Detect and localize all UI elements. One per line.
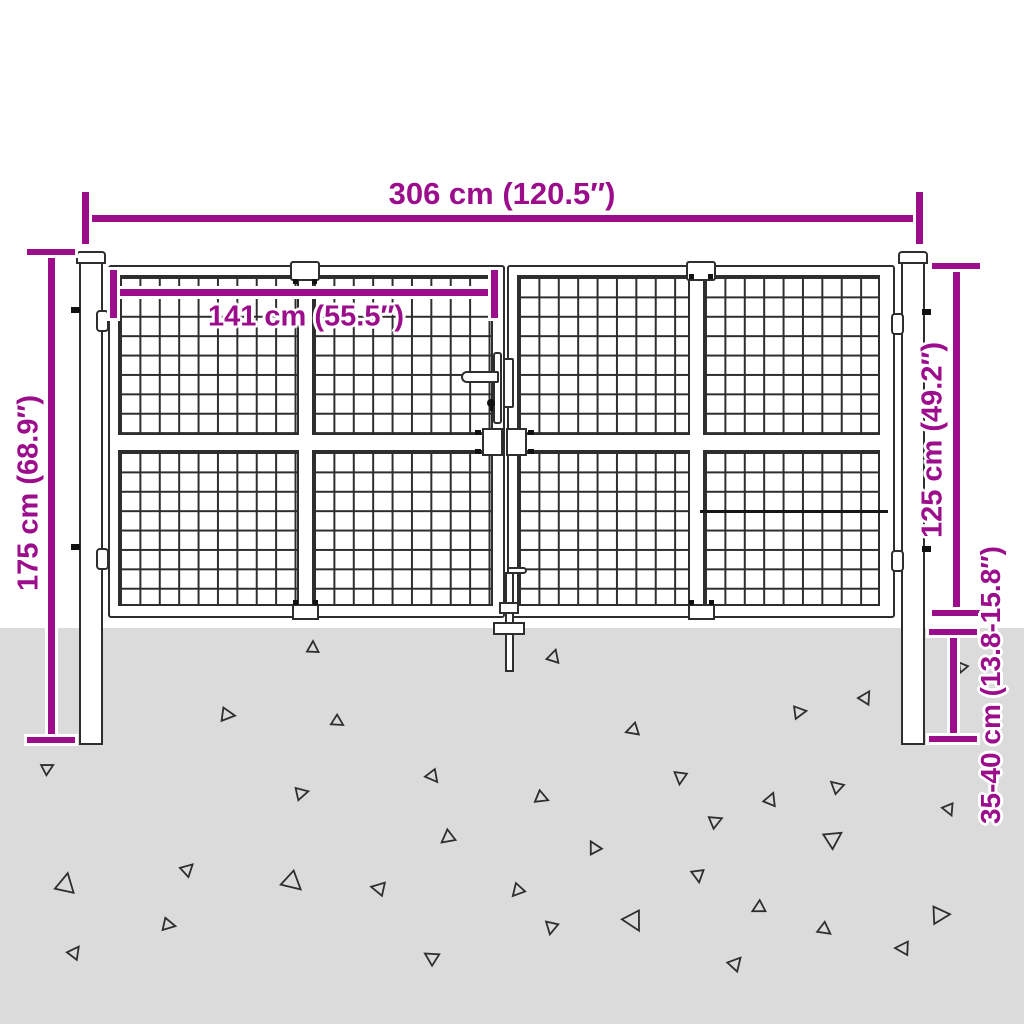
bolt-dot <box>313 600 318 605</box>
gravel-triangle <box>585 838 602 855</box>
gate-handle <box>461 371 499 383</box>
gravel-triangle <box>370 880 385 895</box>
bolt-dot <box>475 430 481 435</box>
gravel-triangle <box>827 777 844 794</box>
gravel-triangle <box>956 663 968 675</box>
mesh-panel <box>312 275 493 435</box>
hinge-top-left <box>96 310 109 332</box>
gravel-triangle <box>749 900 766 917</box>
gravel-triangle <box>222 708 236 722</box>
right-post-cap <box>898 251 928 264</box>
hinge-bottom-left <box>96 548 109 570</box>
gravel-triangle <box>546 648 561 663</box>
gravel-triangle <box>425 769 442 786</box>
gravel-triangle <box>438 829 456 848</box>
top-clamp-left-leaf <box>290 261 320 281</box>
mesh-wire-accent <box>700 510 888 513</box>
mesh-panel <box>312 450 493 606</box>
mesh-panel <box>517 275 690 435</box>
dimension-label-total-width: 306 cm (120.5″) <box>389 176 616 212</box>
gravel-triangle <box>823 825 846 849</box>
gravel-triangle <box>817 922 834 939</box>
gravel-triangle <box>307 641 319 652</box>
dimension-label-gate-height: 125 cm (49.2″) <box>917 342 950 538</box>
keyhole-icon <box>487 399 495 407</box>
gravel-triangle <box>508 883 525 900</box>
dimension-label-post-height: 175 cm (68.9″) <box>13 395 46 591</box>
bolt-dot <box>708 274 713 279</box>
gate-leaf-right <box>507 265 895 618</box>
dimension-cap <box>932 263 980 269</box>
lock-case <box>503 358 514 408</box>
dimension-cap <box>110 270 117 318</box>
hinge-bottom-right <box>891 550 904 572</box>
hinge-pin <box>71 307 80 313</box>
gravel-triangle <box>763 791 779 806</box>
hinge-pin <box>922 546 931 552</box>
product-dimension-diagram: 306 cm (120.5″) 141 cm (55.5″) 175 cm (6… <box>0 0 1024 1024</box>
dimension-cap <box>929 736 977 742</box>
dimension-line <box>112 289 498 296</box>
drop-bolt-guide <box>499 602 519 614</box>
mid-bracket-right <box>506 428 527 456</box>
gravel-triangle <box>691 870 705 884</box>
mesh-panel <box>118 275 299 435</box>
dimension-line <box>950 631 957 739</box>
hinge-top-right <box>891 313 904 335</box>
mesh-panel <box>703 450 880 606</box>
bottom-clamp-left-leaf <box>292 604 319 620</box>
hinge-pin <box>71 544 80 550</box>
gravel-triangle <box>421 948 439 966</box>
gravel-triangle <box>41 760 56 775</box>
mesh-panel <box>517 450 690 606</box>
dimension-cap <box>27 737 75 743</box>
gravel-triangle <box>331 714 346 729</box>
gravel-triangle <box>67 943 84 960</box>
bolt-dot <box>689 274 694 279</box>
gravel-triangle <box>895 942 908 955</box>
drop-bolt-handle <box>507 567 527 574</box>
dimension-cap <box>82 192 89 244</box>
gravel-triangle <box>163 918 177 932</box>
gravel-triangle <box>673 772 686 785</box>
gravel-triangle <box>624 723 639 739</box>
dimension-line <box>85 215 920 222</box>
left-post-cap <box>76 251 106 264</box>
bolt-dot <box>709 600 714 605</box>
gravel-triangle <box>933 905 951 924</box>
gravel-triangle <box>858 688 875 705</box>
dimension-line <box>48 252 55 740</box>
gravel-triangle <box>544 922 558 936</box>
gravel-triangle <box>794 704 808 718</box>
hinge-pin <box>922 309 931 315</box>
gravel-triangle <box>55 871 77 892</box>
dimension-label-leaf-width: 141 cm (55.5″) <box>208 301 404 334</box>
bolt-dot <box>293 600 298 605</box>
drop-bolt-ground-sleeve <box>493 622 525 635</box>
bolt-dot <box>689 600 694 605</box>
dimension-cap <box>929 629 977 635</box>
bolt-dot <box>528 449 534 454</box>
bolt-dot <box>475 449 481 454</box>
dimension-label-below-ground: 35-40 cm (13.8-15.8″) <box>975 546 1007 824</box>
dimension-line <box>953 265 960 616</box>
gravel-triangle <box>281 870 307 896</box>
gravel-triangle <box>727 953 746 971</box>
dimension-cap <box>916 192 923 244</box>
bottom-clamp-right-leaf <box>688 604 715 620</box>
mesh-panel <box>703 275 880 435</box>
gravel-triangle <box>180 860 197 877</box>
dimension-cap <box>491 270 498 318</box>
mid-bracket-left <box>482 428 503 456</box>
gravel-triangle <box>942 803 957 818</box>
gravel-triangle <box>622 910 648 935</box>
bolt-dot <box>312 279 317 284</box>
gravel-triangle <box>295 785 310 800</box>
gravel-triangle <box>535 790 550 806</box>
dimension-cap <box>932 610 980 616</box>
bolt-dot <box>293 279 298 284</box>
lock-stile-plate <box>493 352 502 424</box>
bolt-dot <box>528 430 534 435</box>
dimension-cap <box>27 249 75 255</box>
mesh-panel <box>118 450 299 606</box>
gravel-triangle <box>708 812 724 828</box>
